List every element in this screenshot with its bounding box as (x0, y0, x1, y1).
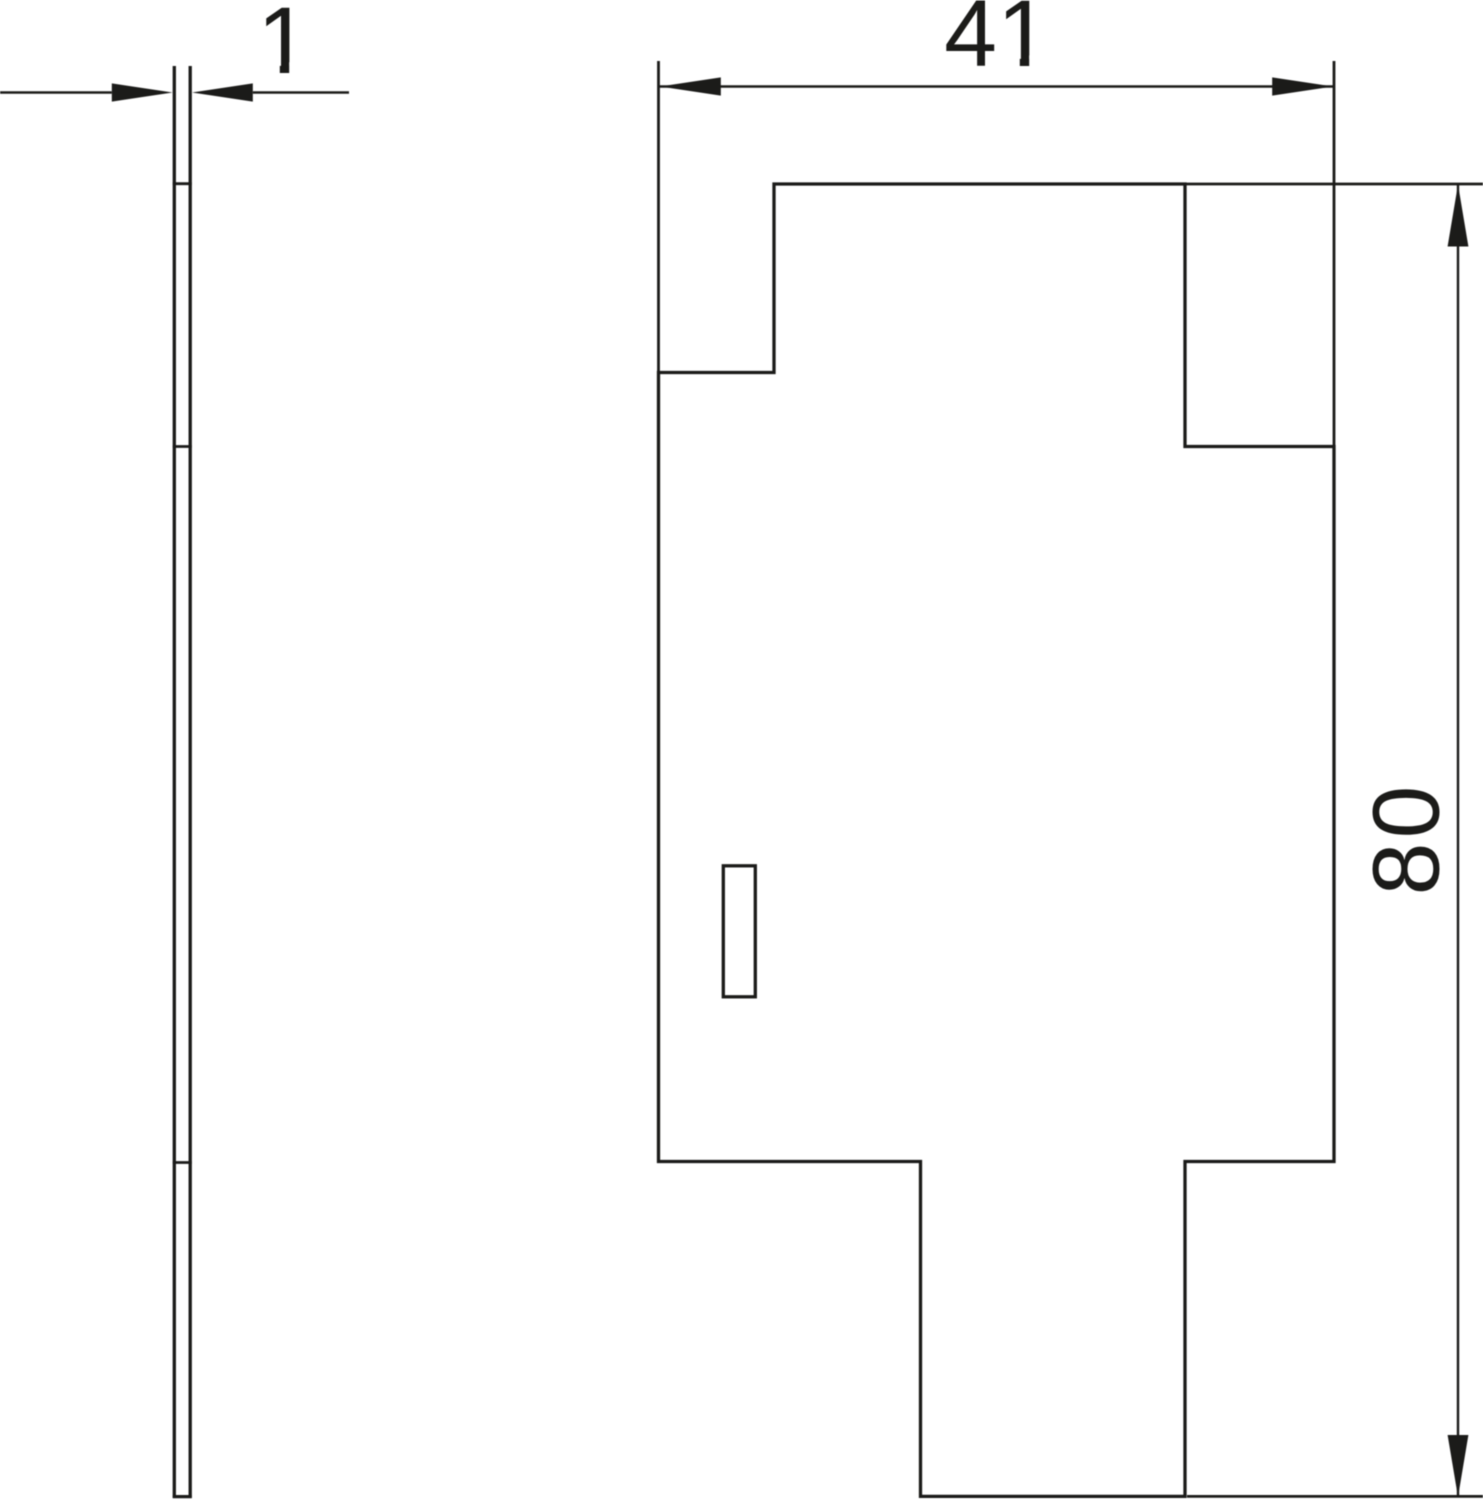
svg-text:80: 80 (1354, 782, 1460, 896)
svg-text:41: 41 (944, 0, 1050, 87)
svg-text:1: 1 (257, 0, 310, 94)
